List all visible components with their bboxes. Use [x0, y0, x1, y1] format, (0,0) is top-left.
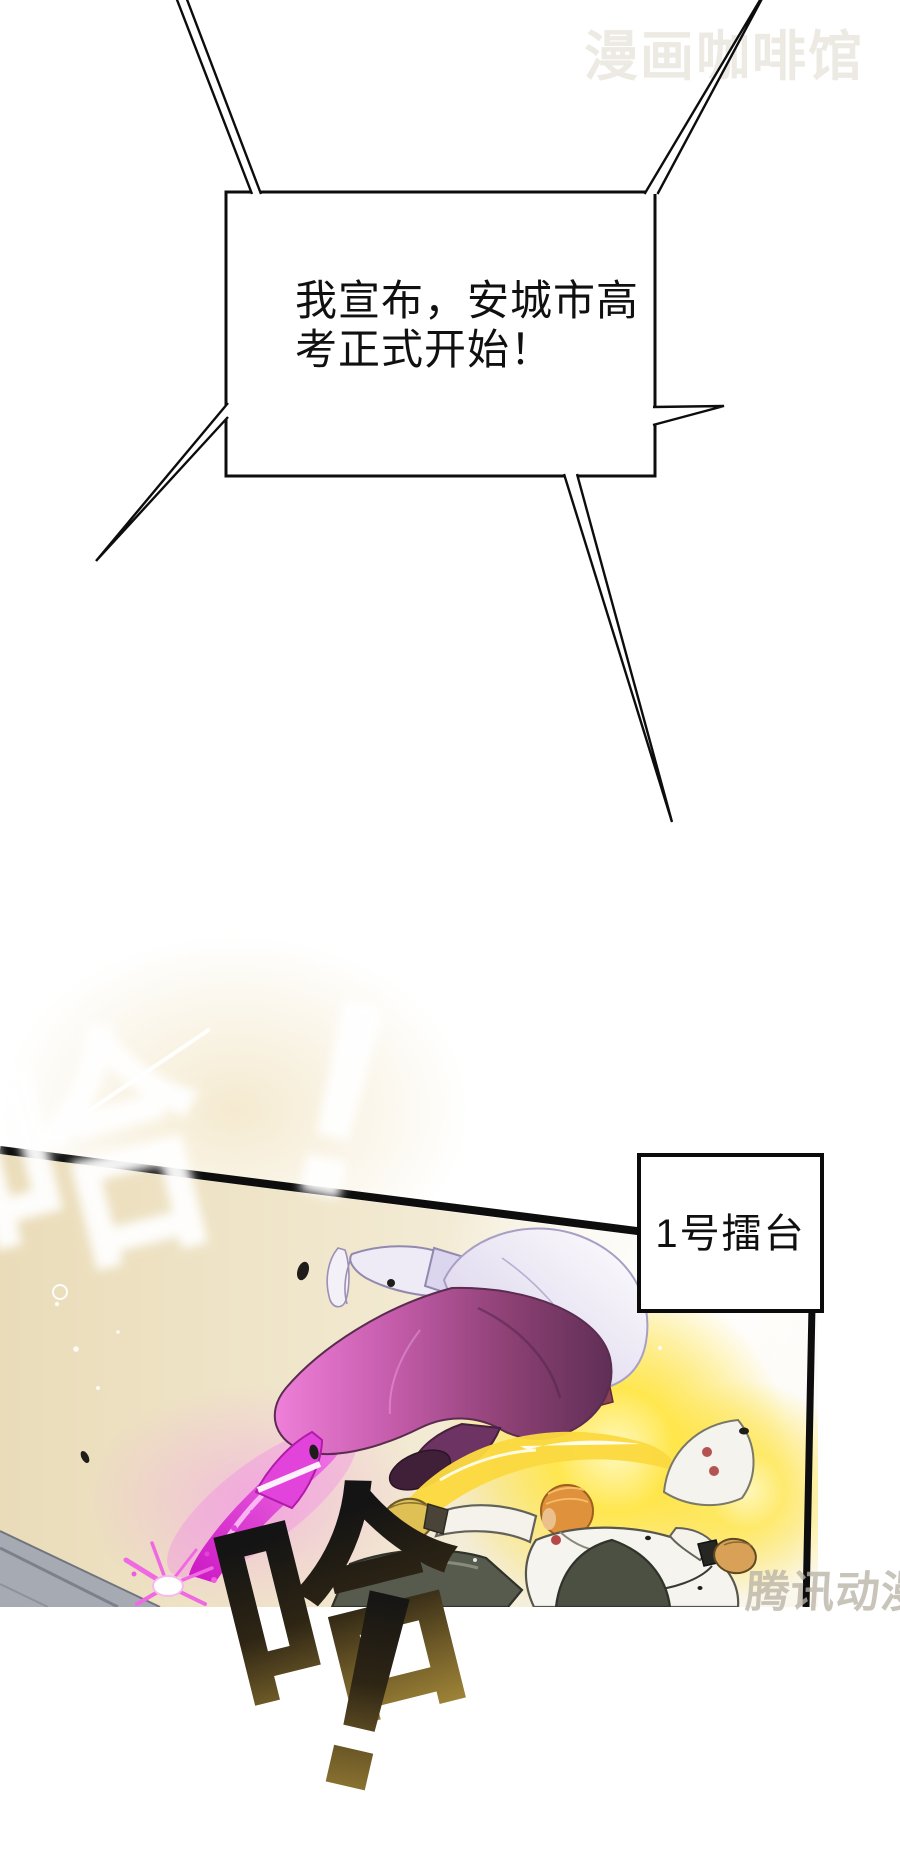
white-bubble-accent — [52, 1284, 68, 1300]
speech-line-2: 考正式开始！ — [295, 325, 625, 374]
speech-bubble — [96, 0, 772, 822]
speed-spike-top-left — [174, 0, 261, 194]
sfx-ha-glow: 哈 — [0, 1006, 242, 1311]
speed-spike-left — [96, 403, 228, 561]
speed-spike-right — [653, 406, 724, 425]
speed-spike-tail — [564, 474, 672, 822]
ring-label-box: 1号擂台 — [637, 1153, 824, 1313]
speed-spike-top-right — [645, 0, 773, 194]
speech-bubble-text: 我宣布，安城市高 考正式开始！ — [295, 276, 625, 374]
ring-label-text: 1号擂台 — [655, 1201, 805, 1259]
watermark-bottom: 腾讯动漫 — [744, 1556, 900, 1620]
speech-line-1: 我宣布，安城市高 — [295, 276, 625, 325]
